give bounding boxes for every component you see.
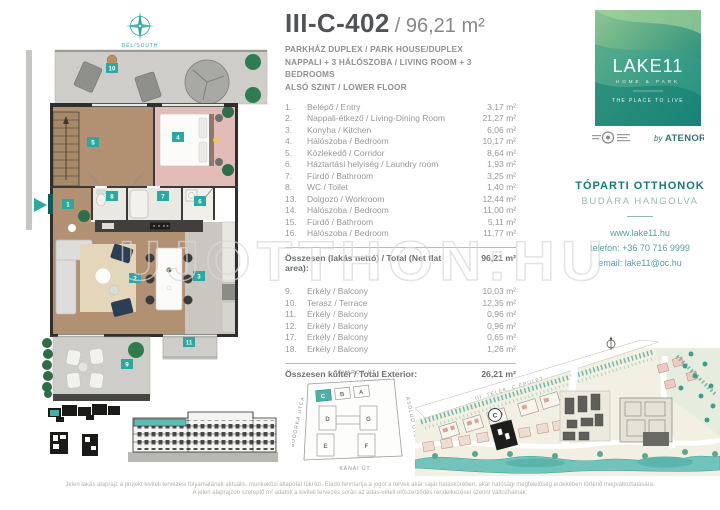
room-number-badge: 9 [125, 362, 129, 369]
round-daybed [185, 60, 229, 104]
logo-title: LAKE11 [613, 56, 684, 76]
contact-subheading: BUDÁRA HANGOLVA [558, 196, 720, 207]
byline-developer: ATENOR [665, 133, 704, 144]
key-floor-plan [50, 432, 98, 456]
highlighted-floor [134, 419, 186, 426]
unit-subtitle: PARKHÁZ DUPLEX / PARK HOUSE/DUPLEX NAPPA… [285, 44, 516, 94]
room-number-badge: 8 [110, 194, 114, 201]
building-section [128, 412, 278, 462]
plant [78, 210, 90, 222]
table-row: 9.Erkély / Balcony10,03 m² [285, 286, 516, 297]
table-row: 1.Belépő / Entry3,17 m² [285, 102, 516, 113]
disclaimer-line: Jelen lakás alaprajz a projekt kiviteli … [20, 481, 700, 489]
table-row: 3.Konyha / Kitchen6,06 m² [285, 125, 516, 136]
contact-block: TÓPARTI OTTHONOK BUDÁRA HANGOLVA www.lak… [558, 180, 720, 271]
disclaimer: Jelen lakás alaprajz a projekt kiviteli … [20, 481, 700, 497]
kitchen-counter [95, 220, 203, 232]
room-number-badge: 6 [198, 199, 202, 206]
entry-arrow-icon [34, 198, 47, 212]
key-plans-and-section [38, 398, 290, 476]
table-row: 10.Terasz / Terrace12,35 m² [285, 298, 516, 309]
interior-room-list: 1.Belépő / Entry3,17 m² 2.Nappali-étkező… [285, 102, 516, 239]
room-number-badge: 11 [186, 340, 193, 347]
room-number-badge: 5 [91, 140, 95, 147]
table-row: 5.Közlekedő / Corridor8,64 m² [285, 148, 516, 159]
svg-text:E: E [323, 444, 327, 450]
svg-text:C: C [493, 413, 498, 420]
plant [245, 87, 261, 103]
email-link[interactable]: email: lake11@oc.hu [558, 256, 720, 271]
unit-id: III-C-402 [285, 8, 390, 39]
svg-text:G: G [366, 417, 371, 423]
room-number-badge: 4 [176, 135, 180, 142]
site-map: C [415, 336, 720, 482]
page-title: III-C-402 / 96,21 m² [285, 8, 516, 39]
contact-heading: TÓPARTI OTTHONOK [558, 180, 720, 192]
room-number-badge: 1 [66, 202, 70, 209]
website-link[interactable]: www.lake11.hu [558, 226, 720, 241]
street-label-bottom: KÁNAI ÚT [339, 465, 370, 472]
brand-byline-row: by ATENOR [592, 127, 704, 149]
table-row: 8.WC / Toilet1,40 m² [285, 182, 516, 193]
phone-link[interactable]: telefon: +36 70 716 9999 [558, 241, 720, 256]
logo-subtitle: HOME & PARK [616, 79, 680, 84]
staircase [53, 112, 79, 186]
left-facade-wall [26, 50, 32, 230]
table-row: 2.Nappali-étkező / Living-Dining Room21,… [285, 113, 516, 124]
table-row: 11.Erkély / Balcony0,96 m² [285, 309, 516, 320]
table-row: 15.Fürdő / Bathroom5,11 m² [285, 217, 516, 228]
certification-logos [592, 132, 630, 143]
upper-terrace [55, 50, 267, 104]
interior-total-row: Összesen (lakás nettó) / Total (Net flat… [285, 253, 516, 273]
lower-terrace [42, 337, 150, 401]
flat-datasheet-page: DÉL/SOUTH [0, 0, 720, 510]
unit-total-area: / 96,21 m² [395, 15, 485, 38]
compass-label: DÉL/SOUTH [122, 42, 159, 49]
plant [128, 342, 144, 358]
entry-door-marker [48, 194, 53, 214]
table-row: 6.Háztartási helyiség / Laundry room1,93… [285, 159, 516, 170]
key-floor-plan [48, 404, 120, 422]
table-row: 4.Hálószoba / Bedroom10,17 m² [285, 136, 516, 147]
plant [222, 106, 234, 118]
plant [222, 164, 234, 176]
divider [285, 247, 516, 248]
room-number-badge: 2 [133, 276, 137, 283]
highlighted-unit [50, 410, 59, 416]
room-number-badge: 7 [161, 194, 165, 201]
room-schedule-column: III-C-402 / 96,21 m² PARKHÁZ DUPLEX / PA… [285, 8, 516, 379]
table-row: 13.Dolgozó / Workroom12,44 m² [285, 194, 516, 205]
compass-icon [126, 12, 154, 40]
building-block-plan: TÓVÁROS ÚT KÁNAI ÚT BODORKA UTCA ÁSÓLÚD … [292, 364, 418, 476]
room-number-badge: 10 [109, 66, 116, 73]
logo-tagline: THE PLACE TO LIVE [612, 98, 684, 104]
table-row: 7.Fürdő / Bathroom3,25 m² [285, 171, 516, 182]
plant [245, 54, 261, 70]
subtitle-line: PARKHÁZ DUPLEX / PARK HOUSE/DUPLEX [285, 44, 516, 57]
table-row: 14.Hálószoba / Bedroom11,00 m² [285, 205, 516, 216]
svg-text:D: D [325, 417, 330, 423]
lake11-logo: LAKE11 HOME & PARK THE PLACE TO LIVE [595, 10, 701, 126]
hedge [42, 338, 53, 398]
lamp [213, 137, 219, 143]
table-row: 16.Hálószoba / Bedroom11,77 m² [285, 228, 516, 239]
room-number-badge: 3 [197, 274, 201, 281]
map-campus [620, 398, 672, 446]
byline-prefix: by [654, 134, 663, 143]
subtitle-line: NAPPALI + 3 HÁLÓSZOBA / LIVING ROOM + 3 … [285, 57, 516, 82]
street-label-left: BODORKA UTCA [292, 396, 306, 448]
svg-text:F: F [365, 444, 369, 450]
street-label-top: TÓVÁROS ÚT [334, 369, 377, 376]
subtitle-line: ALSÓ SZINT / LOWER FLOOR [285, 82, 516, 95]
divider [627, 216, 653, 217]
disclaimer-line: A jelen alaprajzon szereplő m² adatok a … [20, 489, 700, 497]
table-row: 12.Erkély / Balcony0,96 m² [285, 321, 516, 332]
